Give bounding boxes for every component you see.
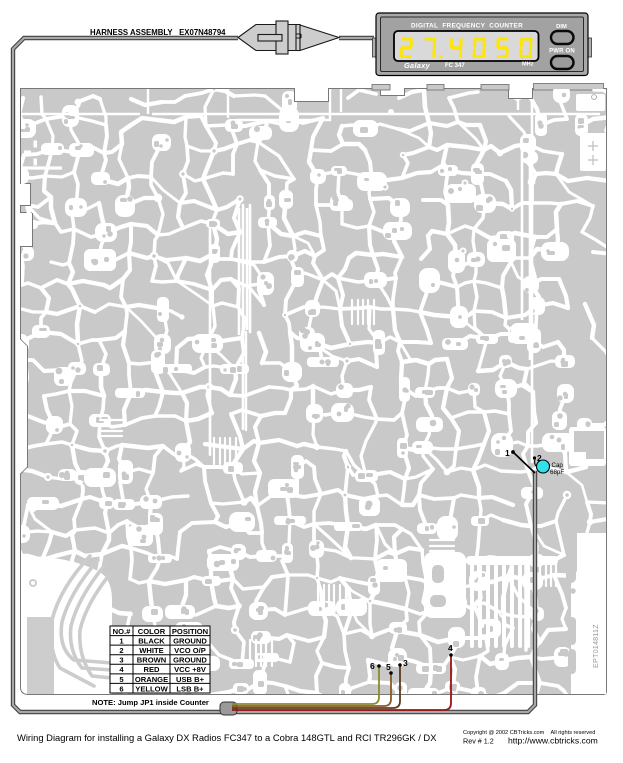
svg-text:6: 6 bbox=[370, 661, 375, 671]
svg-text:RED: RED bbox=[143, 665, 160, 674]
svg-text:FC 347: FC 347 bbox=[445, 63, 465, 69]
svg-text:2: 2 bbox=[119, 646, 123, 655]
svg-text:NOTE: Jump JP1 inside Counter: NOTE: Jump JP1 inside Counter bbox=[92, 698, 209, 707]
svg-text:DIGITAL FREQUENCY COUNTER: DIGITAL FREQUENCY COUNTER bbox=[411, 23, 523, 30]
svg-text:3: 3 bbox=[119, 656, 123, 665]
svg-text:VCC +8V: VCC +8V bbox=[174, 665, 207, 674]
svg-text:USB B+: USB B+ bbox=[176, 675, 205, 684]
svg-text:PWR ON: PWR ON bbox=[549, 49, 575, 55]
svg-text:68pF: 68pF bbox=[550, 469, 564, 476]
svg-text:http://www.cbtricks.com: http://www.cbtricks.com bbox=[508, 736, 598, 746]
svg-text:1: 1 bbox=[505, 448, 510, 458]
svg-text:EPT014811Z: EPT014811Z bbox=[591, 624, 600, 668]
svg-text:POSITION: POSITION bbox=[172, 627, 208, 636]
svg-text:YELLOW: YELLOW bbox=[135, 684, 168, 693]
svg-text:Wiring Diagram for installing: Wiring Diagram for installing a Galaxy D… bbox=[17, 732, 437, 743]
svg-text:Galaxy: Galaxy bbox=[404, 61, 431, 70]
svg-text:LSB B+: LSB B+ bbox=[176, 684, 204, 693]
svg-text:WHITE: WHITE bbox=[139, 646, 163, 655]
svg-text:BLACK: BLACK bbox=[138, 637, 165, 646]
svg-text:HARNESS ASSEMBLY EX07N48794: HARNESS ASSEMBLY EX07N48794 bbox=[90, 28, 226, 37]
svg-text:BROWN: BROWN bbox=[137, 656, 167, 665]
svg-text:VCO O/P: VCO O/P bbox=[174, 646, 206, 655]
svg-text:4: 4 bbox=[448, 643, 453, 653]
svg-text:GROUND: GROUND bbox=[173, 637, 207, 646]
svg-text:GROUND: GROUND bbox=[173, 656, 207, 665]
svg-text:Cap: Cap bbox=[552, 462, 564, 469]
svg-text:NO.#: NO.# bbox=[113, 627, 132, 636]
svg-text:3: 3 bbox=[403, 658, 408, 668]
svg-text:MHz: MHz bbox=[522, 62, 534, 68]
svg-text:ORANGE: ORANGE bbox=[135, 675, 168, 684]
svg-text:6: 6 bbox=[119, 684, 123, 693]
svg-text:COLOR: COLOR bbox=[138, 627, 166, 636]
svg-text:Rev # 1.2: Rev # 1.2 bbox=[463, 737, 494, 746]
svg-text:5: 5 bbox=[386, 662, 391, 672]
svg-text:DIM: DIM bbox=[556, 24, 567, 30]
